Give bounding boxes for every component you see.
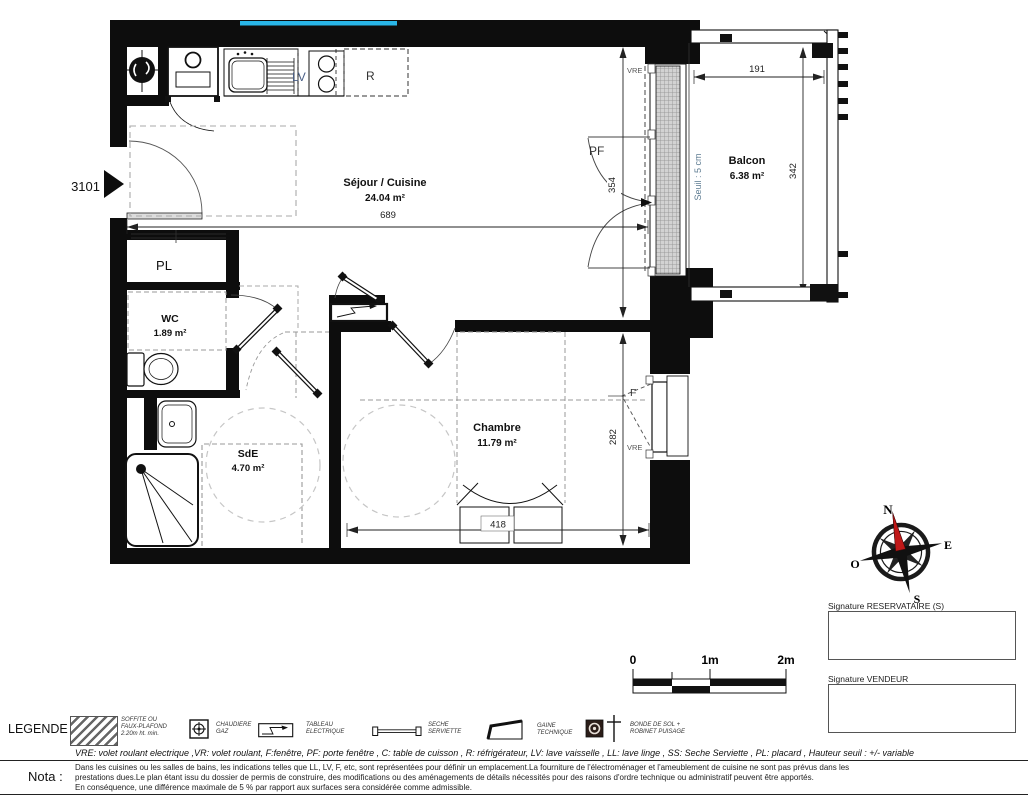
- scale-1m: 1m: [701, 653, 718, 667]
- legend-soffite-label: SOFFITE OU FAUX-PLAFOND 2.20m ht. min.: [121, 717, 183, 738]
- dim-chambre-width: 418: [490, 520, 506, 531]
- compass-o: O: [850, 557, 859, 571]
- interior-doors: [231, 272, 455, 399]
- legend-gaine-label: GAINE TECHNIQUE: [537, 723, 583, 737]
- towel-dryer-icon: [372, 726, 422, 737]
- cooktop-icon: [309, 51, 344, 96]
- dim-chambre-height: 282: [608, 429, 619, 445]
- scale-bar: 0 1m 2m: [630, 653, 795, 693]
- technical-duct-icon: [486, 718, 526, 742]
- bed-icon: [457, 483, 563, 543]
- dim-balcon-width: 191: [749, 64, 765, 75]
- fridge-zone: [344, 49, 408, 96]
- legend-title: LEGENDE: [8, 722, 68, 736]
- room-sde-name: SdE: [238, 448, 258, 460]
- pf-glazing: [645, 64, 686, 276]
- nota-line-3: En conséquence, une différence maximale …: [75, 783, 472, 793]
- dishwasher-label: LV: [292, 70, 306, 84]
- washer-icon: [165, 47, 220, 131]
- window-accent-strip: [240, 21, 397, 26]
- divider-top: [0, 760, 1028, 761]
- legend-tableau-label: TABLEAU ELECTRIQUE: [306, 722, 354, 736]
- compass-n: N: [883, 502, 893, 517]
- ceiling-dashed-zones: [128, 126, 648, 546]
- room-balcon-area: 6.38 m²: [730, 171, 765, 182]
- boiler-icon: [124, 50, 160, 92]
- pf-label: PF: [589, 144, 604, 158]
- washbasin-icon: [158, 401, 196, 447]
- soffite-hatch-icon: [70, 716, 118, 746]
- dim-sejour-height: 354: [607, 177, 618, 193]
- signature-reservataire-label: Signature RESERVATAIRE (S): [828, 601, 944, 611]
- shower-icon: [126, 454, 198, 546]
- scale-0: 0: [630, 653, 637, 667]
- nota-line-2: prestations dues.Le plan étant issu du d…: [75, 773, 814, 783]
- toilet-icon: [127, 353, 178, 386]
- room-wc-name: WC: [161, 313, 179, 325]
- signature-reservataire-box[interactable]: [828, 611, 1016, 660]
- entry-door: [127, 141, 202, 219]
- dim-balcon-height: 342: [788, 163, 799, 179]
- nota-title: Nota :: [28, 769, 63, 784]
- floor-drain-icon: [585, 714, 625, 744]
- nota-line-1: Dans les cuisines ou les salles de bains…: [75, 763, 849, 773]
- room-sejour-name: Séjour / Cuisine: [343, 177, 426, 189]
- seuil-note: Seuil : 5 cm: [693, 153, 703, 200]
- placard-label: PL: [156, 258, 172, 273]
- compass-rose-icon: N E S O: [850, 502, 952, 606]
- vre-label-bedroom: VRE: [627, 443, 642, 452]
- room-sde-area: 4.70 m²: [232, 463, 265, 474]
- electrical-panel-icon: [258, 723, 294, 738]
- dim-sejour-width: 689: [380, 210, 396, 221]
- floor-plan-page: LV R 3101 PL: [0, 0, 1028, 800]
- legend-seche-label: SECHE SERVIETTE: [428, 722, 472, 736]
- divider-bottom: [0, 794, 1028, 795]
- electrical-board-icon: [331, 304, 387, 322]
- signature-vendeur-label: Signature VENDEUR: [828, 674, 908, 684]
- unit-number: 3101: [71, 179, 100, 194]
- gas-boiler-icon: [189, 719, 209, 739]
- window-f-label: F: [630, 387, 636, 399]
- scale-2m: 2m: [777, 653, 794, 667]
- legend-bonde-label: BONDE DE SOL + ROBINET PUISAGE: [630, 722, 696, 736]
- room-chambre-name: Chambre: [473, 422, 521, 434]
- sink-icon: [224, 49, 298, 96]
- entry-arrow-icon: [104, 170, 124, 198]
- room-balcon-name: Balcon: [729, 155, 766, 167]
- legend-abbreviations: VRE: volet roulant electrique ,VR: volet…: [75, 748, 914, 758]
- legend-chaudiere-label: CHAUDIERE GAZ: [216, 722, 264, 736]
- room-sejour-area: 24.04 m²: [365, 193, 406, 204]
- vre-label-top: VRE: [627, 66, 642, 75]
- room-wc-area: 1.89 m²: [154, 328, 187, 339]
- signature-vendeur-box[interactable]: [828, 684, 1016, 733]
- compass-e: E: [944, 538, 952, 552]
- fridge-label: R: [366, 69, 375, 83]
- room-chambre-area: 11.79 m²: [477, 438, 517, 449]
